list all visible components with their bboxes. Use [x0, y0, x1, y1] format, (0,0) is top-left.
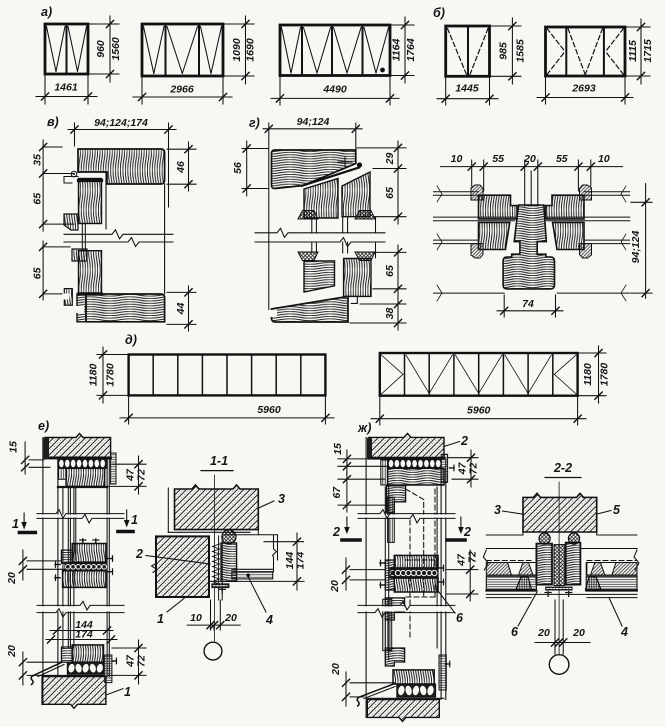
svg-text:10: 10 [451, 153, 463, 165]
svg-text:1: 1 [12, 517, 19, 531]
svg-text:1690: 1690 [245, 38, 257, 62]
svg-text:1445: 1445 [455, 83, 479, 95]
svg-text:55: 55 [556, 153, 568, 165]
svg-text:10: 10 [190, 612, 202, 624]
svg-text:1560: 1560 [110, 37, 122, 61]
svg-text:94;124: 94;124 [297, 116, 330, 128]
svg-text:72: 72 [136, 469, 148, 481]
svg-text:20: 20 [6, 572, 18, 585]
svg-text:1-1: 1-1 [210, 454, 228, 468]
svg-text:174: 174 [75, 629, 93, 641]
svg-text:б): б) [433, 6, 445, 20]
svg-text:65: 65 [384, 187, 396, 199]
svg-text:а): а) [41, 5, 52, 19]
svg-text:1585: 1585 [514, 39, 526, 63]
svg-text:960: 960 [95, 40, 107, 58]
svg-text:5960: 5960 [257, 404, 281, 416]
svg-text:5960: 5960 [467, 405, 491, 417]
svg-text:4: 4 [265, 613, 273, 627]
svg-text:г): г) [249, 116, 260, 130]
svg-text:72: 72 [468, 463, 480, 475]
svg-text:3: 3 [278, 492, 285, 506]
svg-text:1180: 1180 [88, 364, 100, 387]
svg-text:56: 56 [232, 162, 244, 174]
svg-text:3: 3 [494, 503, 501, 517]
svg-text:2-2: 2-2 [553, 461, 572, 475]
svg-text:15: 15 [8, 441, 20, 453]
svg-text:2966: 2966 [169, 84, 194, 96]
svg-text:74: 74 [522, 298, 534, 310]
svg-text:1: 1 [124, 685, 131, 699]
svg-text:е): е) [38, 419, 49, 433]
svg-text:2: 2 [463, 525, 471, 539]
svg-text:20: 20 [6, 645, 18, 658]
svg-text:1090: 1090 [231, 38, 243, 62]
svg-text:20: 20 [572, 627, 585, 639]
svg-text:94;124;174: 94;124;174 [94, 117, 148, 129]
svg-text:20: 20 [523, 153, 536, 165]
svg-text:15: 15 [332, 443, 344, 455]
svg-text:72: 72 [136, 655, 148, 667]
svg-text:20: 20 [330, 663, 342, 676]
svg-text:67: 67 [331, 486, 343, 499]
svg-text:д): д) [125, 333, 137, 347]
svg-text:1764: 1764 [405, 38, 417, 62]
svg-text:174: 174 [295, 552, 307, 570]
svg-text:20: 20 [224, 612, 237, 624]
svg-text:5: 5 [613, 503, 621, 517]
svg-text:35: 35 [32, 154, 44, 166]
svg-text:1461: 1461 [54, 82, 78, 94]
svg-text:6: 6 [511, 625, 519, 639]
svg-text:29: 29 [384, 153, 396, 166]
svg-text:6: 6 [456, 611, 464, 625]
svg-text:1180: 1180 [582, 363, 594, 386]
svg-text:1780: 1780 [599, 363, 611, 387]
svg-text:ж): ж) [357, 421, 371, 435]
svg-text:2: 2 [135, 547, 143, 561]
svg-text:1: 1 [131, 513, 138, 527]
svg-text:55: 55 [492, 153, 504, 165]
svg-text:44: 44 [175, 303, 187, 316]
svg-text:1: 1 [157, 612, 164, 626]
svg-text:4: 4 [620, 625, 628, 639]
svg-text:1715: 1715 [642, 39, 654, 63]
svg-text:4490: 4490 [322, 84, 347, 96]
svg-text:20: 20 [329, 580, 341, 593]
svg-text:94;124: 94;124 [630, 230, 642, 263]
svg-text:2693: 2693 [571, 83, 596, 95]
svg-text:1780: 1780 [105, 363, 117, 387]
svg-text:20: 20 [537, 627, 550, 639]
svg-text:38: 38 [384, 308, 396, 320]
svg-text:1115: 1115 [627, 40, 639, 62]
svg-text:65: 65 [32, 267, 44, 279]
svg-text:65: 65 [32, 193, 44, 205]
svg-text:10: 10 [598, 153, 610, 165]
svg-text:2: 2 [332, 525, 340, 539]
svg-text:1164: 1164 [391, 39, 403, 62]
svg-text:в): в) [47, 115, 59, 129]
svg-text:46: 46 [175, 161, 187, 174]
svg-text:72: 72 [467, 551, 479, 563]
svg-text:2: 2 [460, 434, 468, 448]
svg-text:985: 985 [498, 42, 510, 60]
svg-text:65: 65 [384, 265, 396, 277]
